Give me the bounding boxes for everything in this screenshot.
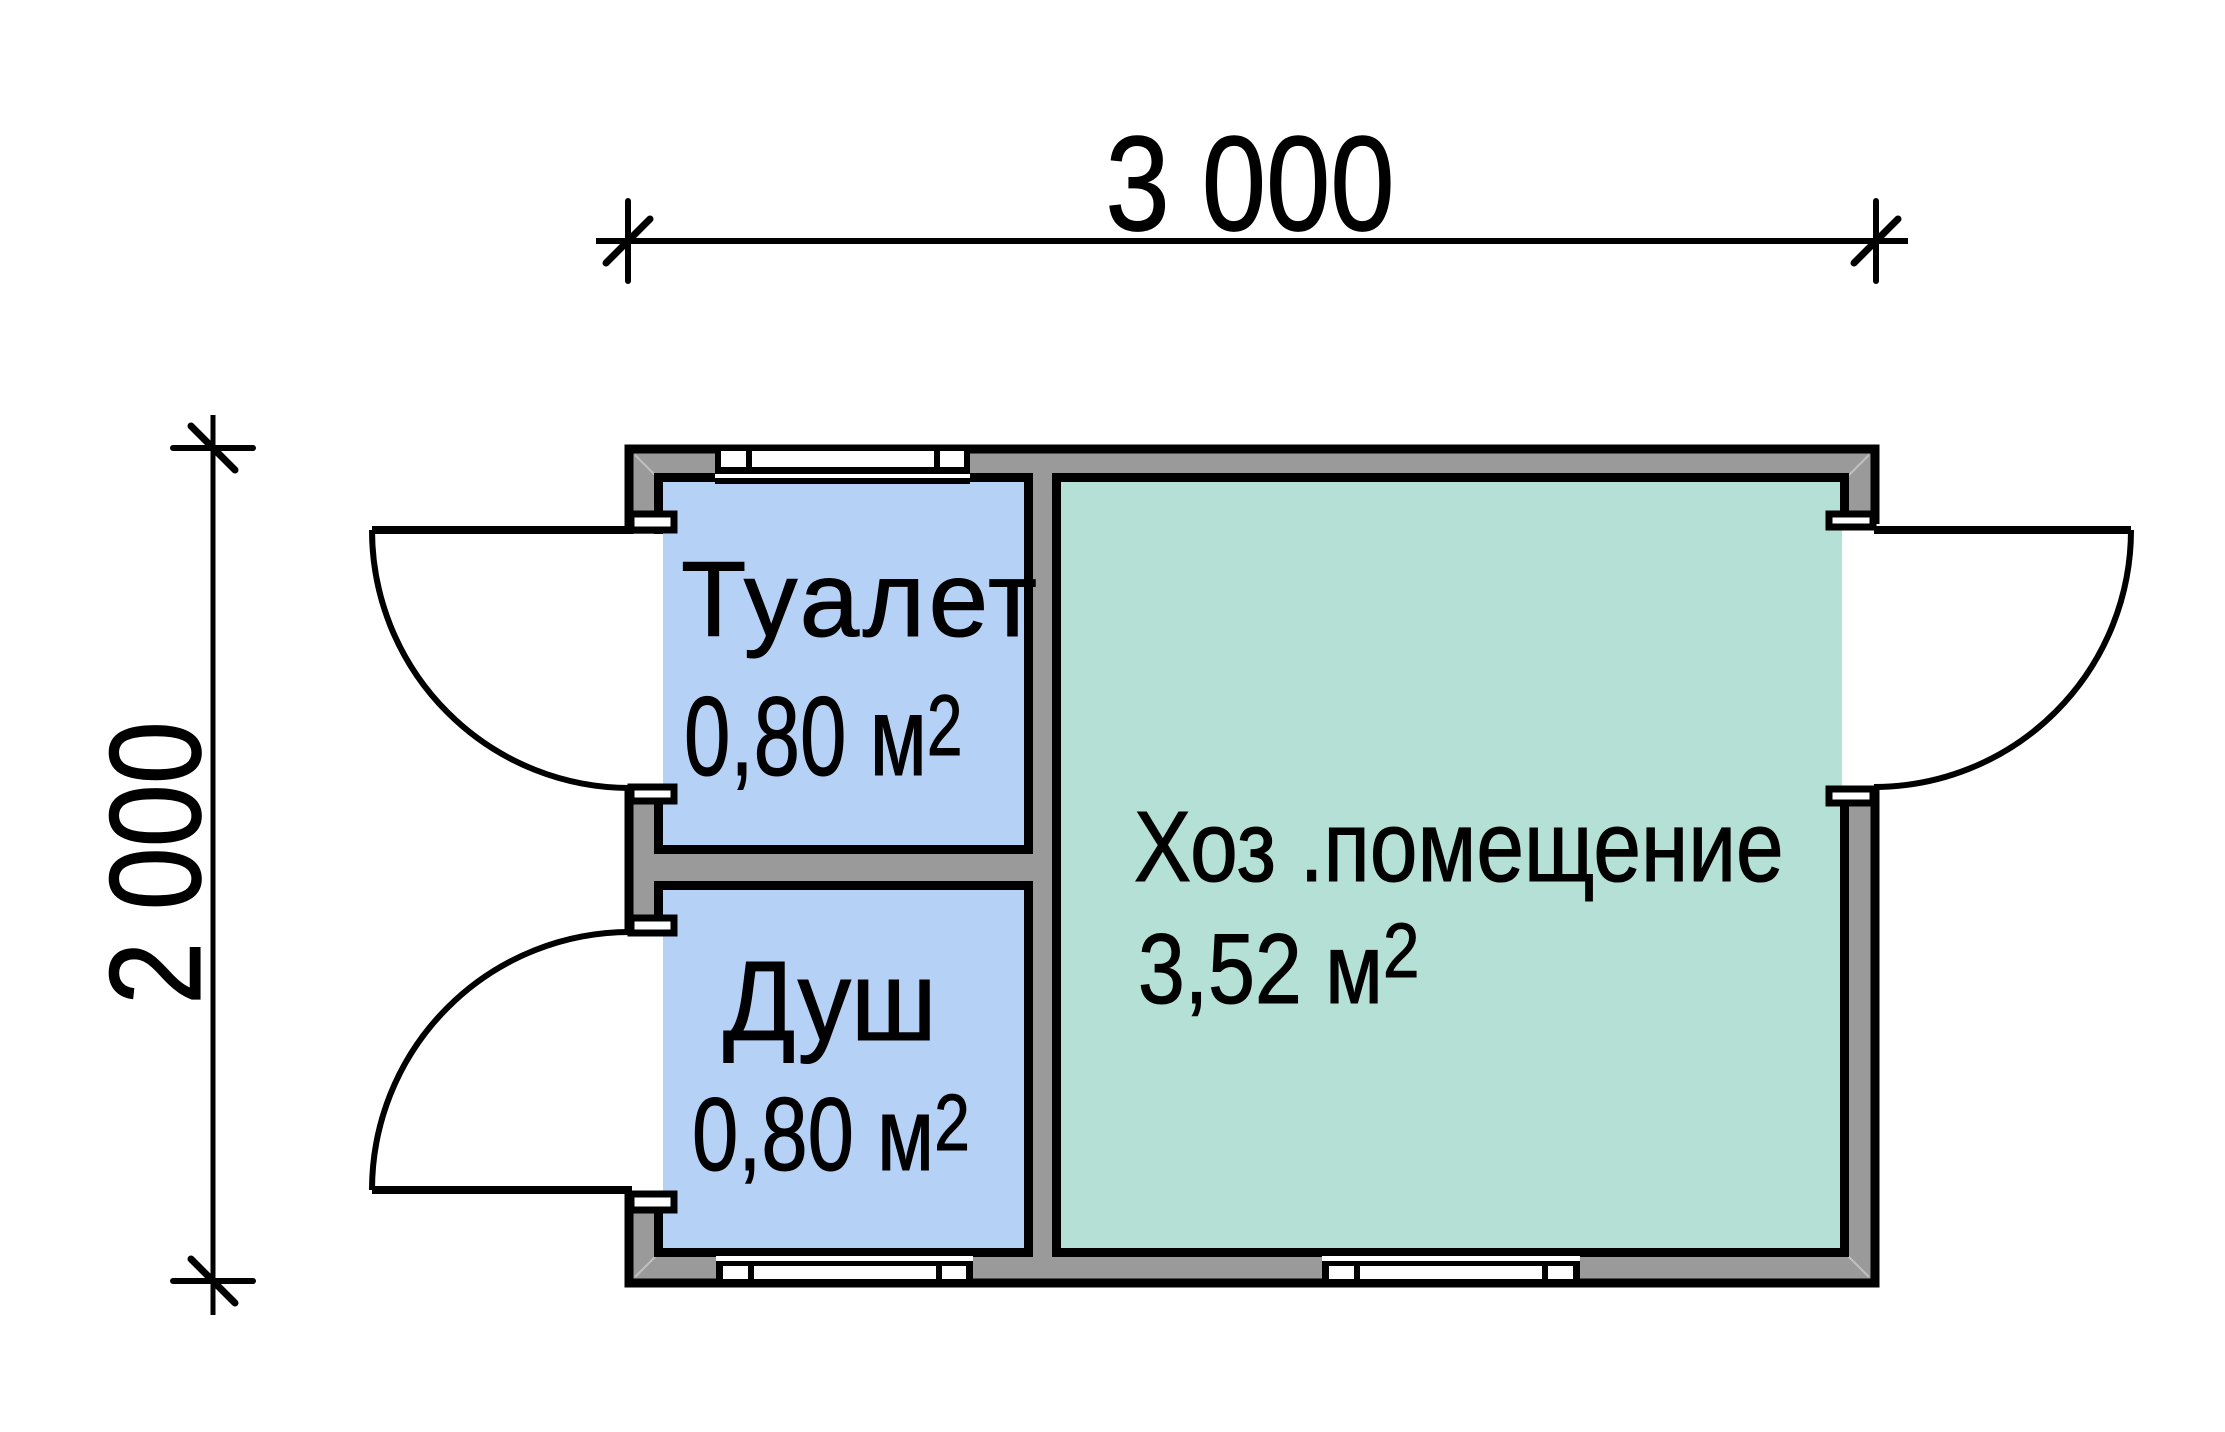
svg-text:Хоз .помещение: Хоз .помещение xyxy=(1134,791,1784,903)
svg-text:Душ: Душ xyxy=(723,938,937,1064)
svg-text:0,80 м2: 0,80 м2 xyxy=(692,1076,970,1192)
svg-text:2 000: 2 000 xyxy=(83,721,228,1005)
svg-text:Туалет: Туалет xyxy=(681,539,1041,659)
svg-text:3,52 м2: 3,52 м2 xyxy=(1138,908,1419,1025)
svg-text:3 000: 3 000 xyxy=(1105,108,1394,259)
svg-text:0,80 м2: 0,80 м2 xyxy=(684,674,963,799)
